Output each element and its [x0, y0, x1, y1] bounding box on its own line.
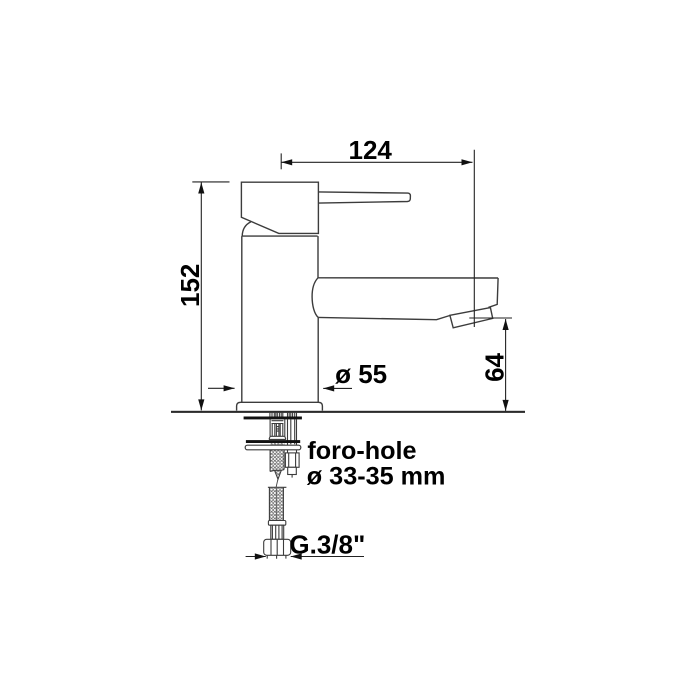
- svg-text:64: 64: [479, 352, 509, 381]
- svg-text:ø 55: ø 55: [335, 359, 387, 389]
- svg-text:152: 152: [175, 264, 205, 307]
- svg-text:124: 124: [349, 135, 393, 165]
- svg-text:ø 33-35 mm: ø 33-35 mm: [307, 462, 446, 490]
- svg-text:G.3/8": G.3/8": [289, 530, 365, 560]
- svg-text:foro-hole: foro-hole: [307, 437, 416, 465]
